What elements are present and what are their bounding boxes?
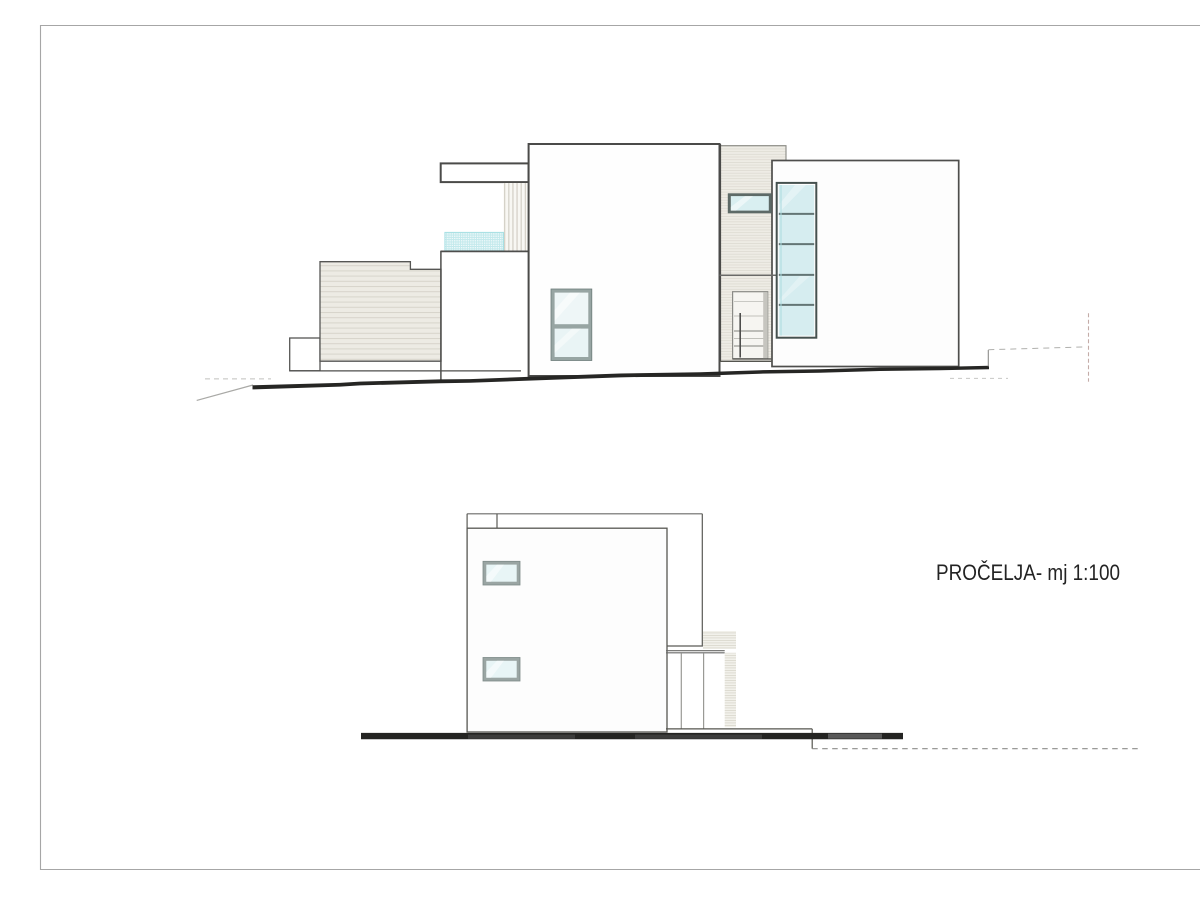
svg-text:PROČELJA- mj 1:100: PROČELJA- mj 1:100 (936, 560, 1120, 585)
